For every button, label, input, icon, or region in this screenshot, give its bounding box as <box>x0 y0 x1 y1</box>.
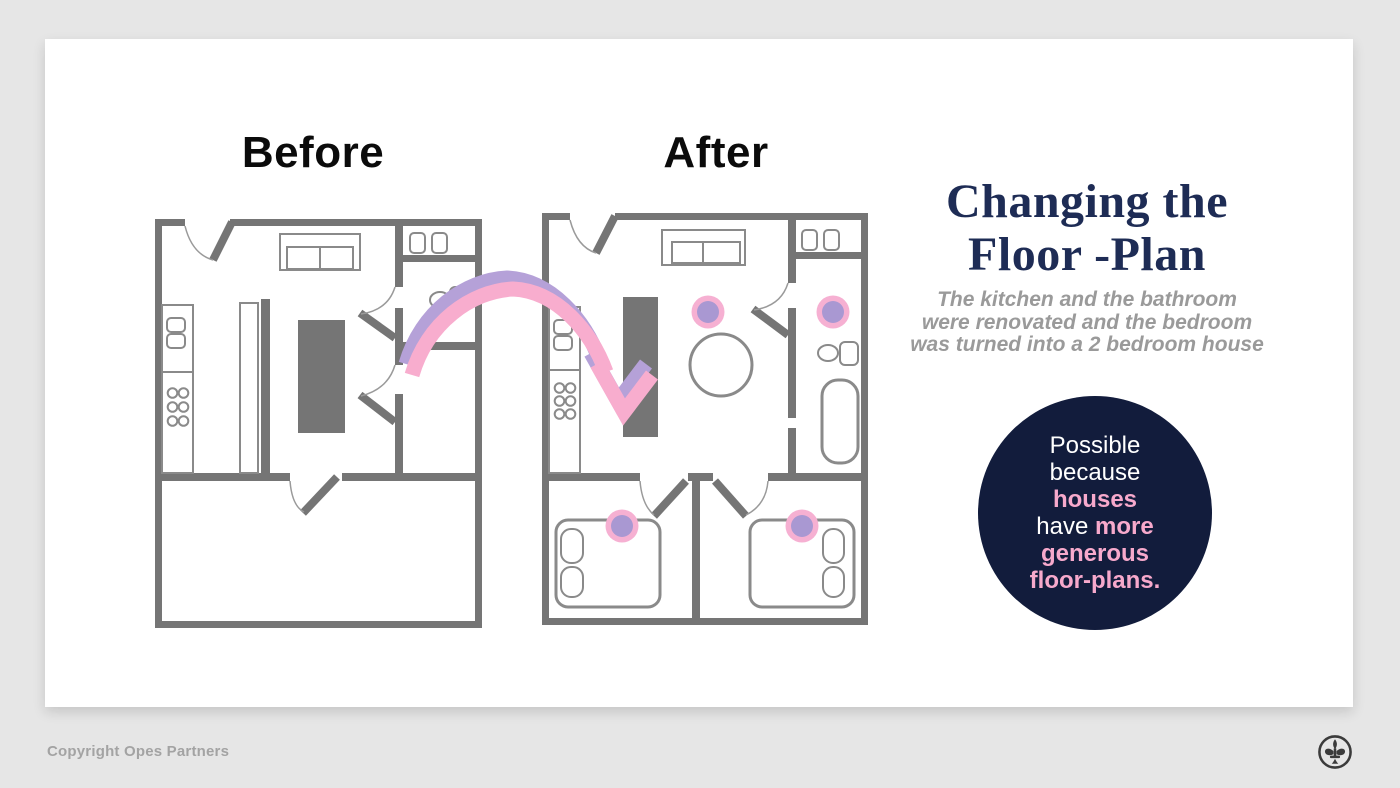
slide-card: Before After <box>45 39 1353 707</box>
badge-line: floor-plans. <box>1030 567 1161 594</box>
subtitle-line: The kitchen and the bathroom <box>900 289 1274 312</box>
badge-text: because <box>1050 459 1141 486</box>
burner <box>168 402 178 412</box>
page-title: Changing the Floor -Plan <box>922 175 1252 281</box>
burner <box>179 416 189 426</box>
badge-line: houses <box>1053 486 1137 513</box>
burner <box>555 383 565 393</box>
burner <box>566 383 576 393</box>
after-floor-plan <box>542 213 868 625</box>
bathroom-fixture <box>430 292 450 308</box>
renovation-marker <box>606 510 639 543</box>
burner <box>555 409 565 419</box>
burner <box>168 416 178 426</box>
title-line-1: Changing the <box>922 175 1252 228</box>
subtitle-line: were renovated and the bedroom <box>900 312 1274 335</box>
slide-page: { "colors": { "page_background": "#e6e6e… <box>0 0 1400 788</box>
sink <box>554 320 572 334</box>
laundry-fixture <box>410 233 425 253</box>
badge-line: because <box>1050 459 1141 486</box>
badge-line: generous <box>1041 540 1149 567</box>
tall-partition <box>240 303 258 473</box>
laundry-fixture <box>432 233 447 253</box>
badge-text: have <box>1036 513 1095 540</box>
sink <box>167 334 185 348</box>
badge-text-highlight: houses <box>1053 486 1137 513</box>
fleur-de-lis-logo-icon <box>1318 735 1352 769</box>
badge-text-highlight: more <box>1095 513 1154 540</box>
round-table <box>690 334 752 396</box>
bathtub <box>822 380 858 463</box>
burner <box>566 396 576 406</box>
renovation-marker <box>817 296 850 329</box>
kitchen-island <box>623 297 658 437</box>
pillow <box>823 529 844 563</box>
pillow <box>561 529 583 563</box>
badge-line: Possible <box>1050 432 1141 459</box>
before-floor-plan <box>155 219 482 628</box>
burner <box>179 388 189 398</box>
badge-text-highlight: generous <box>1041 540 1149 567</box>
burner <box>555 396 565 406</box>
renovation-marker <box>692 296 725 329</box>
copyright-text: Copyright Opes Partners <box>47 743 229 760</box>
pillow <box>823 567 844 597</box>
burner <box>179 402 189 412</box>
badge-text: Possible <box>1050 432 1141 459</box>
burner <box>566 409 576 419</box>
after-heading: After <box>616 129 816 177</box>
sink <box>167 318 185 332</box>
laundry-fixture <box>802 230 817 250</box>
burner <box>168 388 178 398</box>
kitchen-island <box>298 320 345 433</box>
sink <box>554 336 572 350</box>
pillow <box>561 567 583 597</box>
renovation-marker <box>786 510 819 543</box>
after-furniture <box>549 230 858 607</box>
bathroom-fixture <box>450 287 467 312</box>
subtitle-line: was turned into a 2 bedroom house <box>900 334 1274 357</box>
badge-text-highlight: floor-plans. <box>1030 567 1161 594</box>
page-subtitle: The kitchen and the bathroom were renova… <box>900 289 1274 357</box>
title-line-2: Floor -Plan <box>922 228 1252 281</box>
badge-line: have more <box>1036 513 1153 540</box>
bathroom-fixture <box>840 342 858 365</box>
laundry-fixture <box>824 230 839 250</box>
possible-badge: Possible because houses have more genero… <box>978 396 1212 630</box>
bathroom-fixture <box>818 345 838 361</box>
before-heading: Before <box>213 129 413 177</box>
